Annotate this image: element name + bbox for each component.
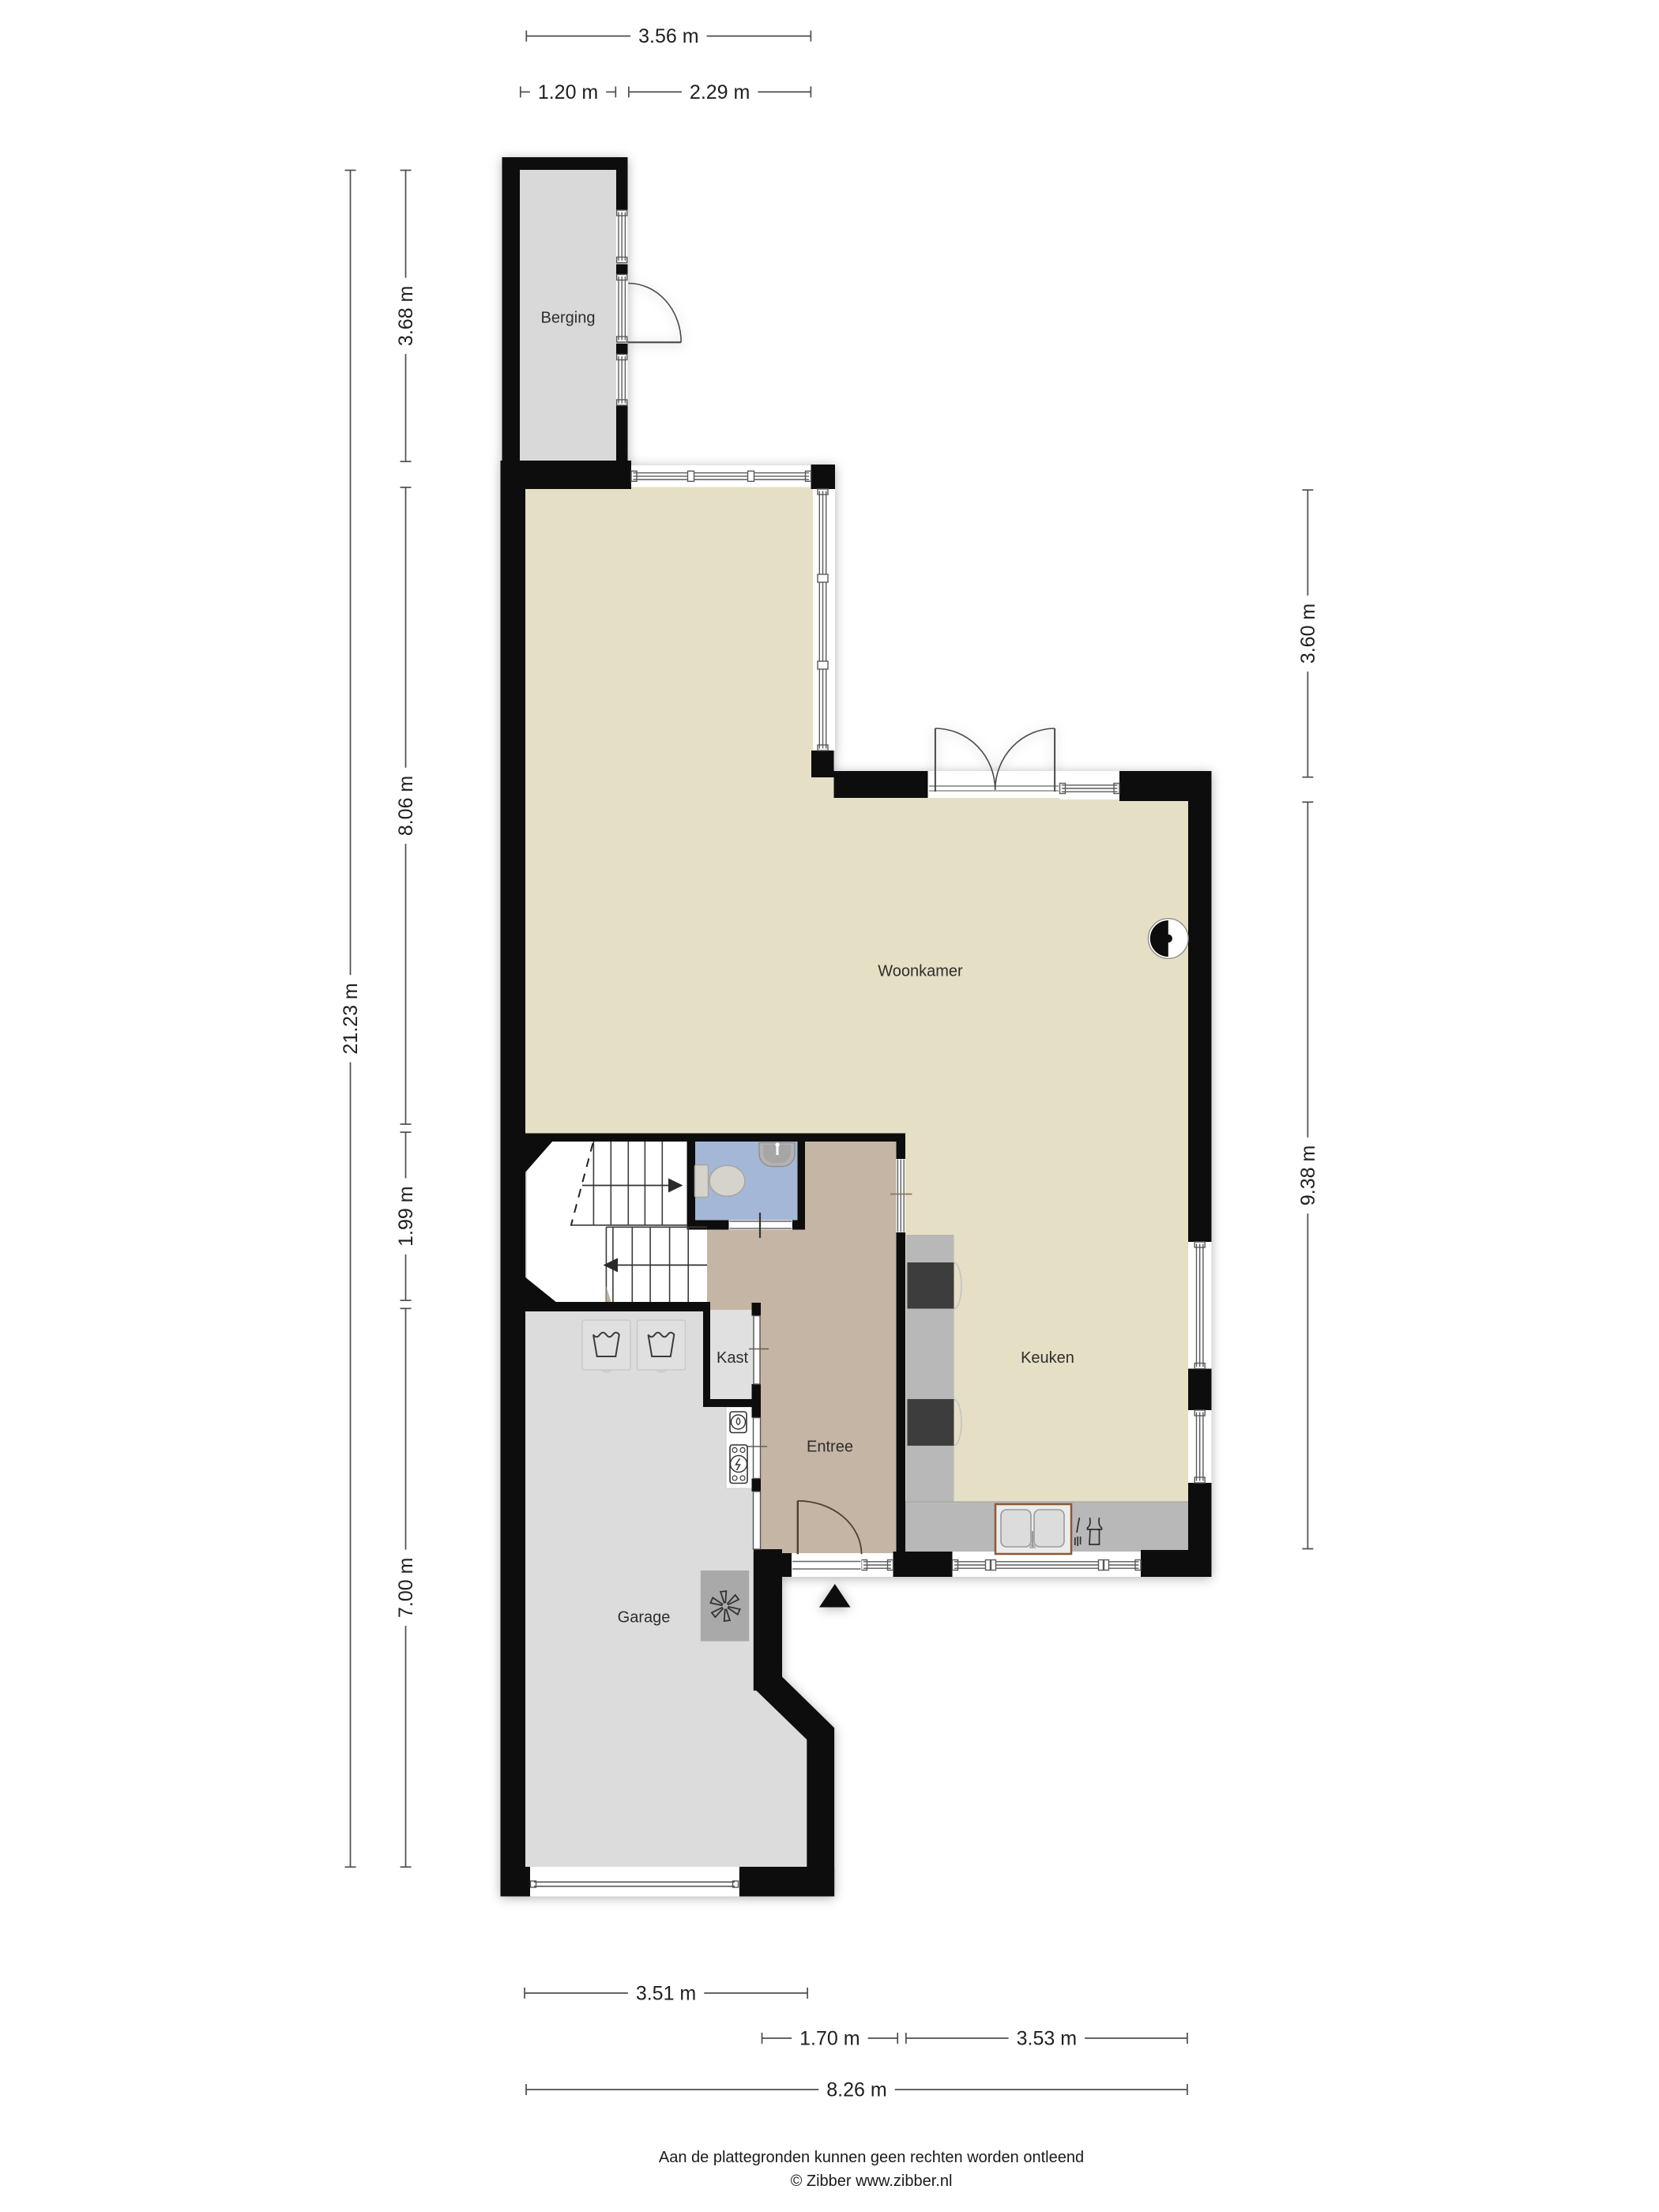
svg-text:Woonkamer: Woonkamer xyxy=(878,963,963,980)
svg-text:Entree: Entree xyxy=(807,1439,853,1456)
svg-text:3.68 m: 3.68 m xyxy=(395,286,417,346)
svg-text:3.53 m: 3.53 m xyxy=(1017,2028,1077,2050)
svg-text:Kast: Kast xyxy=(717,1349,748,1367)
svg-text:Garage: Garage xyxy=(618,1609,671,1627)
svg-text:1.99 m: 1.99 m xyxy=(395,1186,417,1246)
svg-text:3.51 m: 3.51 m xyxy=(636,1982,696,2004)
svg-text:7.00 m: 7.00 m xyxy=(395,1558,417,1618)
svg-text:© Zibber www.zibber.nl: © Zibber www.zibber.nl xyxy=(791,2172,953,2190)
svg-text:21.23 m: 21.23 m xyxy=(340,983,362,1054)
svg-text:Berging: Berging xyxy=(541,310,596,327)
svg-text:3.56 m: 3.56 m xyxy=(638,25,698,47)
svg-text:8.06 m: 8.06 m xyxy=(395,776,417,836)
svg-text:8.26 m: 8.26 m xyxy=(826,2079,886,2101)
svg-text:Aan de plattegronden kunnen ge: Aan de plattegronden kunnen geen rechten… xyxy=(659,2149,1084,2166)
svg-text:Keuken: Keuken xyxy=(1021,1349,1074,1367)
svg-text:2.29 m: 2.29 m xyxy=(690,81,750,103)
svg-text:9.38 m: 9.38 m xyxy=(1297,1145,1319,1206)
svg-text:1.70 m: 1.70 m xyxy=(799,2028,860,2050)
svg-text:3.60 m: 3.60 m xyxy=(1297,604,1319,664)
svg-text:1.20 m: 1.20 m xyxy=(538,81,598,103)
